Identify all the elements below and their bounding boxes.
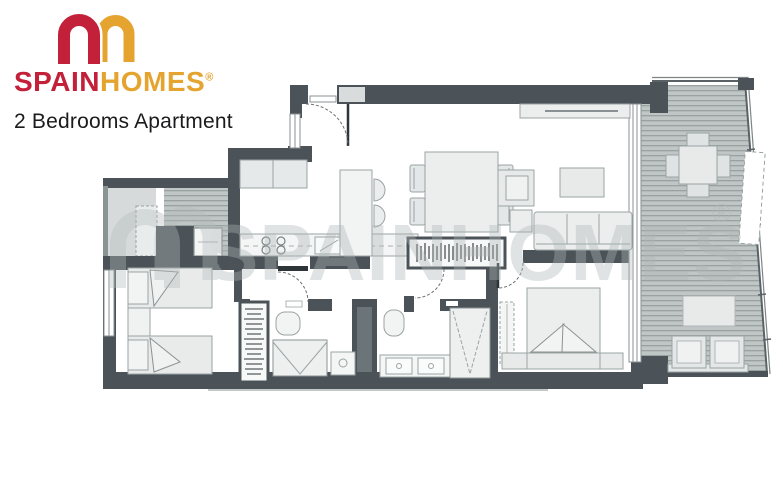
wall-storage-left [103, 186, 108, 258]
watermark: SPAINHOMES ® [118, 198, 747, 297]
shower-tray [273, 340, 327, 376]
outdoor-mat [683, 296, 735, 326]
watermark-registered: ® [712, 198, 731, 228]
entrance [306, 86, 366, 146]
bar-stool [374, 179, 385, 201]
wall-bottom-shadow [208, 389, 548, 391]
armchair-cushion [506, 176, 528, 200]
toilet [276, 312, 300, 335]
nightstand [128, 308, 150, 336]
walk-in-shower [450, 308, 490, 378]
outdoor-table [679, 146, 717, 184]
washbasin [331, 352, 355, 375]
bath1-door-sill [286, 301, 302, 307]
floor-plan-drawing: SPAINHOMES ® [0, 0, 783, 490]
bed1-pillow [128, 272, 148, 304]
entry-shelf [310, 96, 336, 102]
headboard-with-nightstands [502, 353, 623, 369]
bed2-pillow [128, 340, 148, 370]
wall-bottom [103, 372, 643, 389]
basin-right [418, 358, 444, 374]
wall-entry-left [290, 85, 308, 104]
wall-bath1-top [308, 299, 332, 311]
wall-bath-divider-core [357, 307, 372, 377]
floor-plan-page: SPAINHOMES® 2 Bedrooms Apartment [0, 0, 783, 490]
entry-door-arc [306, 104, 348, 146]
entry-cabinet [338, 86, 366, 103]
terrace-corner-post [738, 78, 754, 90]
door-bath2-leaf [404, 296, 414, 312]
bathroom-2 [380, 308, 490, 378]
basin-left [386, 358, 412, 374]
toilet [384, 310, 404, 336]
wall-storage-top [103, 178, 234, 188]
wall-shelf-nook [446, 301, 458, 306]
wall-top-main [348, 85, 660, 104]
watermark-text: SPAINHOMES [205, 208, 747, 297]
wall-terrace-corner [650, 82, 668, 113]
bathroom-1 [273, 301, 355, 376]
coffee-table [560, 168, 604, 197]
